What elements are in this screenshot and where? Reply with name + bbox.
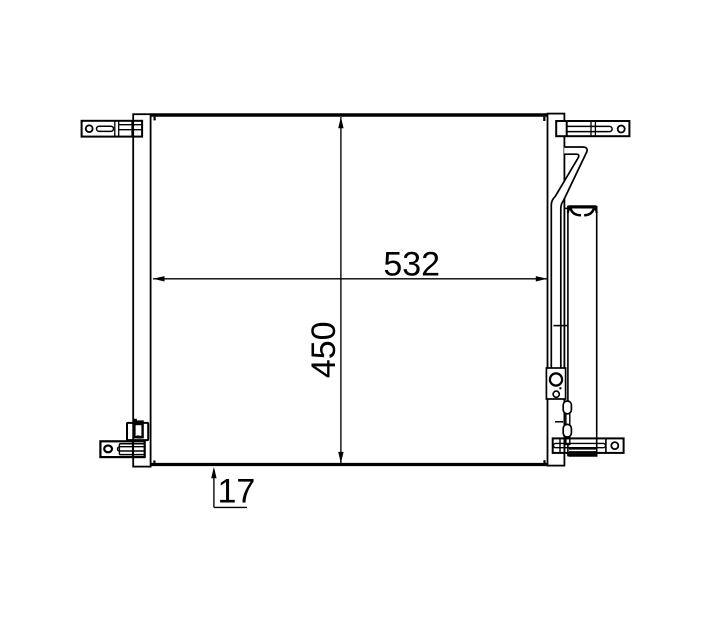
svg-text:17: 17: [218, 472, 256, 510]
svg-text:450: 450: [305, 321, 343, 378]
svg-text:532: 532: [383, 246, 440, 284]
